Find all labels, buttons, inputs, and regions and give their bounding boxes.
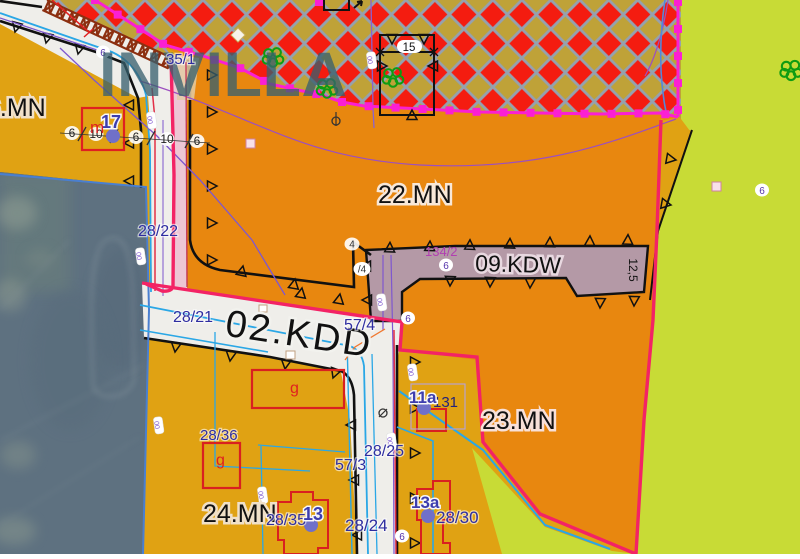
svg-text:28/25: 28/25: [364, 443, 404, 460]
svg-text:13a: 13a: [411, 493, 440, 512]
svg-text:/4: /4: [358, 265, 367, 276]
svg-text:00: 00: [375, 298, 383, 307]
svg-text:57/3: 57/3: [335, 457, 366, 474]
svg-text:00: 00: [134, 252, 142, 261]
svg-text:00: 00: [365, 56, 373, 65]
svg-text:134/2: 134/2: [425, 244, 458, 259]
svg-text:131: 131: [433, 394, 458, 411]
svg-text:4: 4: [349, 240, 355, 251]
svg-text:15: 15: [403, 42, 416, 54]
svg-text:6: 6: [443, 261, 449, 272]
svg-text:6: 6: [133, 130, 140, 144]
svg-text:23.MN: 23.MN: [482, 407, 556, 435]
svg-text:m: m: [90, 118, 104, 137]
svg-text:INVILLA: INVILLA: [99, 40, 348, 110]
svg-text:12,5: 12,5: [626, 258, 640, 282]
svg-text:28/36: 28/36: [200, 427, 238, 444]
svg-text:00: 00: [256, 491, 264, 500]
svg-text:6: 6: [759, 186, 765, 197]
svg-text:6: 6: [405, 314, 411, 325]
svg-text:28/22: 28/22: [138, 223, 178, 240]
svg-text:00: 00: [406, 368, 414, 377]
svg-text:6: 6: [69, 126, 76, 140]
svg-text:11a: 11a: [409, 388, 437, 407]
svg-text:57/4: 57/4: [344, 317, 375, 334]
svg-text:28/35: 28/35: [266, 512, 306, 529]
svg-text:6: 6: [194, 134, 201, 148]
svg-text:00: 00: [145, 116, 153, 125]
svg-text:g: g: [290, 380, 299, 397]
svg-text:28/24: 28/24: [345, 516, 388, 535]
svg-text:13: 13: [303, 504, 323, 524]
svg-text:28/30: 28/30: [436, 508, 479, 527]
svg-text:35/1: 35/1: [166, 51, 195, 68]
svg-text:6: 6: [399, 532, 405, 543]
svg-text:22.MN: 22.MN: [378, 181, 452, 209]
svg-text:28/21: 28/21: [173, 309, 213, 326]
svg-text:g: g: [216, 452, 225, 469]
svg-text:6.MN: 6.MN: [0, 94, 46, 122]
svg-text:00: 00: [152, 421, 160, 430]
svg-text:09.KDW: 09.KDW: [475, 250, 562, 278]
svg-text:10: 10: [160, 132, 174, 146]
